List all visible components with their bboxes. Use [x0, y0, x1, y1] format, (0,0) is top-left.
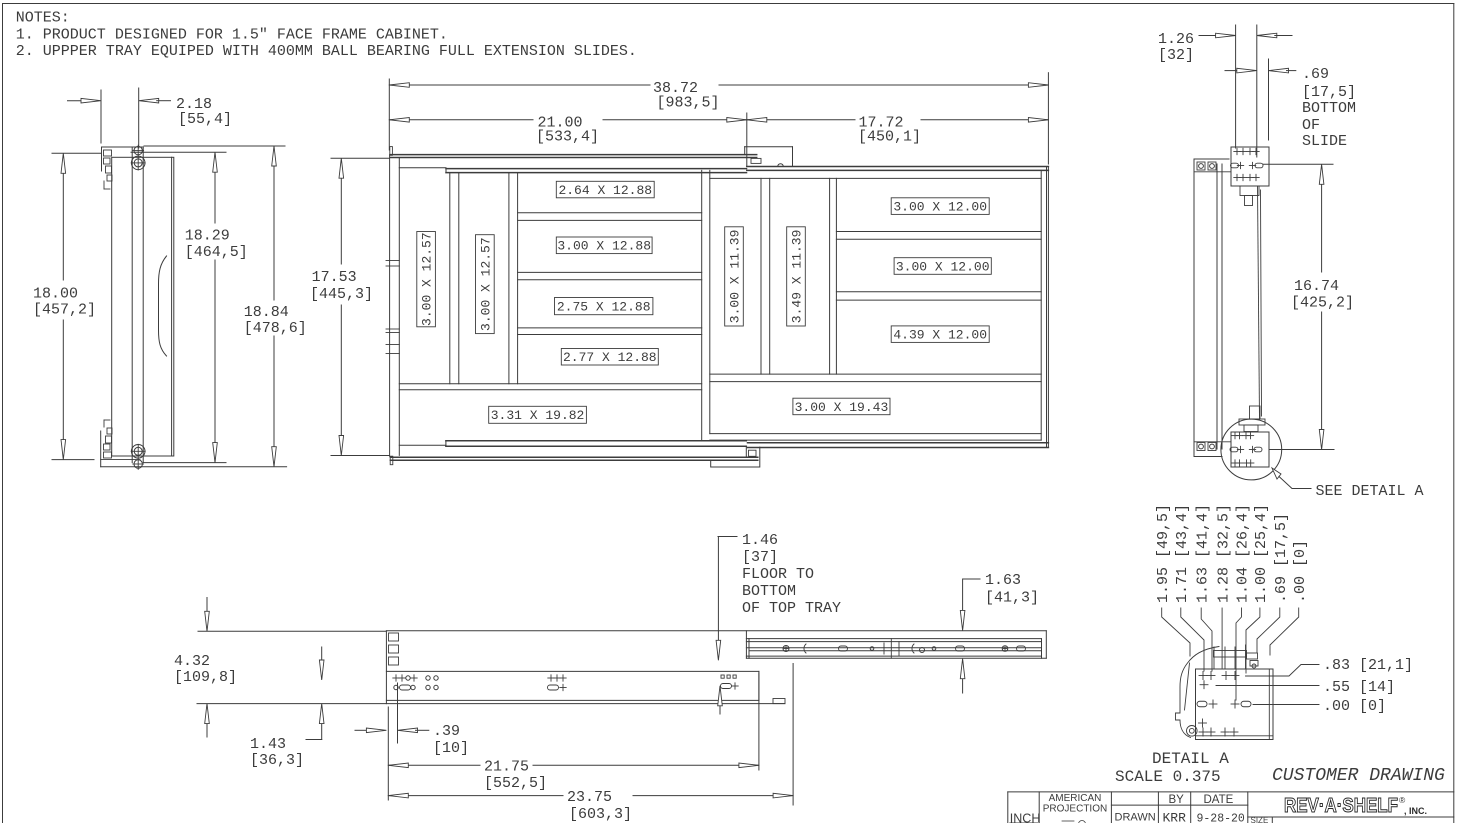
svg-text:[32]: [32] [1158, 47, 1194, 64]
svg-text:.69 [17,5]: .69 [17,5] [1273, 513, 1290, 603]
svg-text:SLIDE: SLIDE [1302, 133, 1347, 150]
svg-text:BOTTOM: BOTTOM [742, 583, 796, 600]
svg-text:[41,3]: [41,3] [985, 590, 1039, 607]
svg-text:[533,4]: [533,4] [536, 129, 599, 146]
svg-text:OF TOP TRAY: OF TOP TRAY [742, 600, 841, 617]
svg-text:KRR: KRR [1163, 811, 1187, 824]
svg-text:[17,5]: [17,5] [1302, 84, 1356, 101]
svg-text:.55 [14]: .55 [14] [1323, 679, 1395, 696]
svg-text:3.00 X 12.88: 3.00 X 12.88 [557, 239, 651, 254]
svg-text:3.00 X 12.57: 3.00 X 12.57 [420, 232, 435, 326]
svg-text:.83 [21,1]: .83 [21,1] [1323, 657, 1413, 674]
svg-text:1.04 [26,4]: 1.04 [26,4] [1235, 504, 1252, 603]
svg-text:[55,4]: [55,4] [178, 111, 232, 128]
svg-text:[464,5]: [464,5] [185, 244, 248, 261]
svg-text:[36,3]: [36,3] [250, 752, 304, 769]
svg-text:BOTTOM: BOTTOM [1302, 100, 1356, 117]
svg-text:2. UPPPER TRAY EQUIPED WITH 40: 2. UPPPER TRAY EQUIPED WITH 400MM BALL B… [16, 43, 637, 60]
svg-text:[983,5]: [983,5] [657, 95, 720, 112]
svg-text:16.74: 16.74 [1294, 278, 1339, 295]
svg-text:1.28 [32,5]: 1.28 [32,5] [1215, 504, 1232, 603]
svg-text:3.49 X 11.39: 3.49 X 11.39 [789, 230, 804, 324]
svg-text:18.00: 18.00 [33, 286, 78, 303]
svg-text:2.64 X 12.88: 2.64 X 12.88 [558, 183, 652, 198]
svg-text:21.75: 21.75 [484, 759, 529, 776]
svg-text:17.53: 17.53 [312, 269, 357, 286]
svg-text:BY: BY [1169, 794, 1185, 806]
svg-text:.69: .69 [1302, 66, 1329, 83]
svg-text:[109,8]: [109,8] [174, 669, 237, 686]
svg-text:REV·A·SHELF: REV·A·SHELF [1284, 795, 1398, 817]
svg-text:1.43: 1.43 [250, 736, 286, 753]
svg-text:3.00 X 12.00: 3.00 X 12.00 [896, 259, 990, 274]
svg-text:[457,2]: [457,2] [33, 302, 96, 319]
svg-text:®: ® [1399, 795, 1406, 805]
svg-text:1.95 [49,5]: 1.95 [49,5] [1155, 504, 1172, 603]
svg-text:OF: OF [1302, 117, 1320, 134]
svg-text:[603,3]: [603,3] [569, 806, 632, 823]
svg-text:3.00 X 12.57: 3.00 X 12.57 [478, 237, 493, 331]
svg-text:CUSTOMER DRAWING: CUSTOMER DRAWING [1272, 766, 1445, 786]
svg-text:NOTES:: NOTES: [16, 10, 70, 27]
svg-text:FLOOR TO: FLOOR TO [742, 566, 814, 583]
svg-text:PROJECTION: PROJECTION [1043, 804, 1107, 815]
svg-text:[552,5]: [552,5] [484, 775, 547, 792]
svg-text:DETAIL A: DETAIL A [1152, 750, 1229, 768]
svg-text:.00 [0]: .00 [0] [1292, 540, 1309, 603]
svg-text:SEE DETAIL A: SEE DETAIL A [1316, 483, 1424, 500]
svg-text:1.00 [25,4]: 1.00 [25,4] [1253, 504, 1270, 603]
svg-text:4.32: 4.32 [174, 653, 210, 670]
svg-text:2.77 X 12.88: 2.77 X 12.88 [563, 350, 657, 365]
svg-text:1. PRODUCT DESIGNED FOR 1.5" F: 1. PRODUCT DESIGNED FOR 1.5" FACE FRAME … [16, 27, 448, 44]
svg-text:9-28-20: 9-28-20 [1197, 813, 1245, 824]
svg-text:1.63: 1.63 [985, 572, 1021, 589]
svg-text:4.39 X 12.00: 4.39 X 12.00 [893, 328, 987, 343]
svg-text:[37]: [37] [742, 549, 778, 566]
svg-text:AMERICAN: AMERICAN [1049, 793, 1102, 804]
svg-text:.00 [0]: .00 [0] [1323, 698, 1386, 715]
svg-text:[425,2]: [425,2] [1291, 295, 1354, 312]
svg-text:1.71 [43,4]: 1.71 [43,4] [1174, 504, 1191, 603]
svg-text:[445,3]: [445,3] [310, 286, 373, 303]
svg-text:INCH: INCH [1010, 812, 1041, 824]
svg-text:3.00 X 12.00: 3.00 X 12.00 [893, 200, 987, 215]
svg-text:DATE: DATE [1204, 794, 1234, 806]
svg-text:3.00 X 11.39: 3.00 X 11.39 [727, 230, 742, 324]
svg-text:1.46: 1.46 [742, 532, 778, 549]
svg-text:1.63 [41,4]: 1.63 [41,4] [1194, 504, 1211, 603]
svg-text:18.29: 18.29 [185, 228, 230, 245]
svg-text:SIZE: SIZE [1251, 816, 1269, 823]
svg-text:.39: .39 [433, 723, 460, 740]
svg-text:DRAWN: DRAWN [1115, 812, 1156, 824]
svg-text:[450,1]: [450,1] [858, 129, 921, 146]
svg-text:3.00 X 19.43: 3.00 X 19.43 [795, 400, 889, 415]
svg-text:18.84: 18.84 [244, 304, 289, 321]
svg-text:1.26: 1.26 [1158, 31, 1194, 48]
svg-text:23.75: 23.75 [567, 789, 612, 806]
svg-text:[478,6]: [478,6] [244, 320, 307, 337]
svg-text:3.31 X 19.82: 3.31 X 19.82 [491, 408, 585, 423]
svg-text:SCALE 0.375: SCALE 0.375 [1115, 768, 1221, 786]
svg-text:[10]: [10] [433, 740, 469, 757]
svg-text:2.75 X 12.88: 2.75 X 12.88 [557, 300, 651, 315]
svg-text:, INC.: , INC. [1404, 806, 1427, 816]
